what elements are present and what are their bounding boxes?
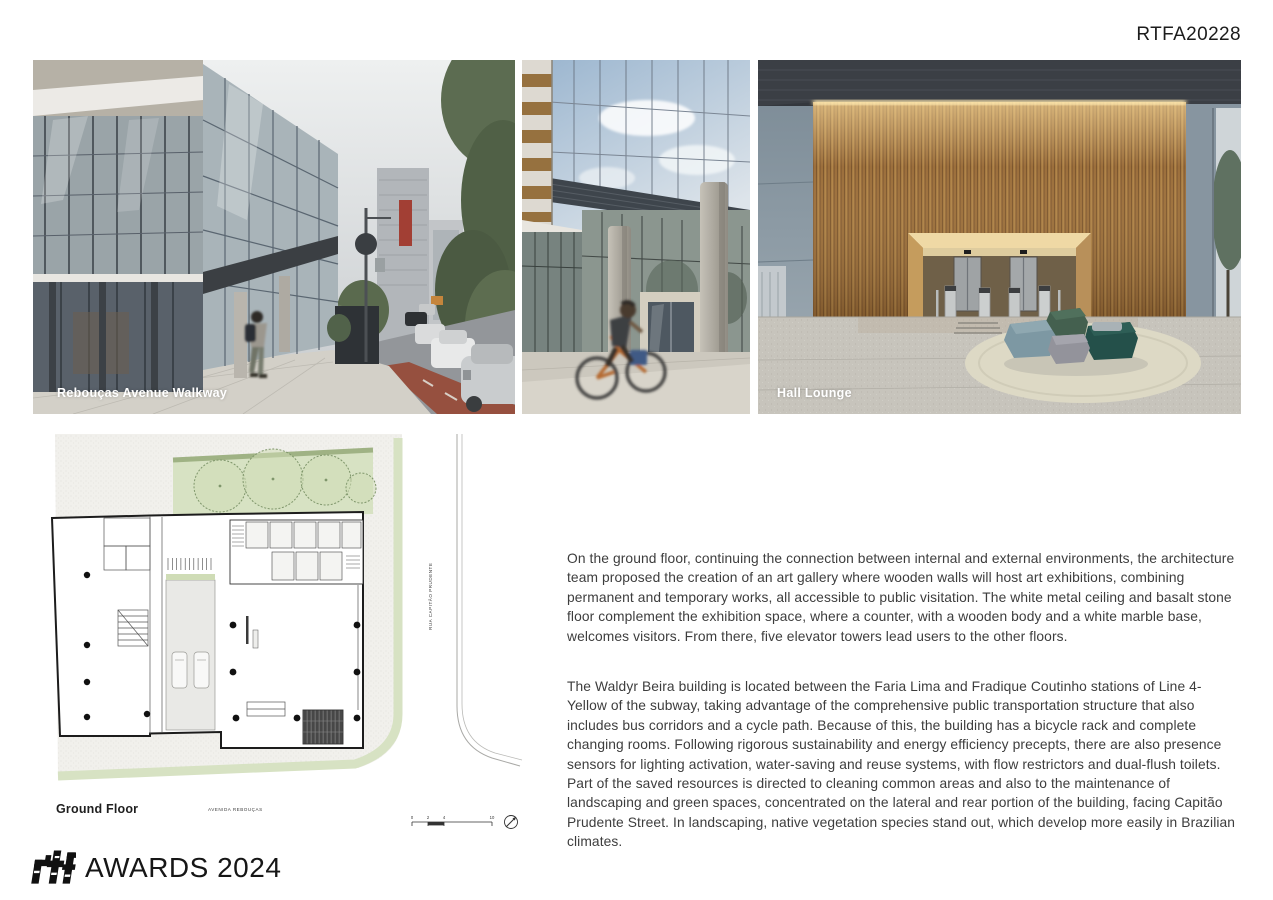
photo-entrance bbox=[522, 60, 750, 414]
svg-text:0: 0 bbox=[411, 815, 414, 820]
footer-brand: AWARDS 2024 bbox=[30, 845, 281, 891]
photo-street-art bbox=[33, 60, 515, 414]
rtf-logo-icon bbox=[30, 845, 76, 891]
svg-text:2: 2 bbox=[427, 815, 430, 820]
north-arrow-icon bbox=[505, 816, 518, 829]
photo-entrance-art bbox=[522, 60, 750, 414]
photo-hall-caption: Hall Lounge bbox=[777, 386, 852, 400]
awards-wordmark: AWARDS 2024 bbox=[85, 852, 281, 884]
floor-plan: Ground Floor AVENIDA REBOUÇAS RUA CAPITÃ… bbox=[40, 430, 530, 835]
photo-hall: Hall Lounge bbox=[758, 60, 1241, 414]
body-paragraph-1: On the ground floor, continuing the conn… bbox=[567, 549, 1237, 646]
svg-text:4: 4 bbox=[443, 815, 446, 820]
scale-bar: 0 2 4 10 bbox=[411, 815, 495, 826]
ground-floor-label: Ground Floor bbox=[56, 802, 138, 816]
side-street-label: RUA CAPITÃO PRUDENTE bbox=[427, 563, 433, 630]
photo-street: Rebouças Avenue Walkway bbox=[33, 60, 515, 414]
project-code: RTFA20228 bbox=[1136, 24, 1241, 46]
floor-plan-drawing: Ground Floor AVENIDA REBOUÇAS RUA CAPITÃ… bbox=[40, 430, 530, 835]
photo-street-caption: Rebouças Avenue Walkway bbox=[57, 386, 227, 400]
body-paragraph-2: The Waldyr Beira building is located bet… bbox=[567, 677, 1237, 852]
avenue-label: AVENIDA REBOUÇAS bbox=[208, 807, 263, 812]
svg-text:10: 10 bbox=[490, 815, 495, 820]
photo-hall-art bbox=[758, 60, 1241, 414]
presentation-board: RTFA20228 bbox=[0, 0, 1273, 900]
